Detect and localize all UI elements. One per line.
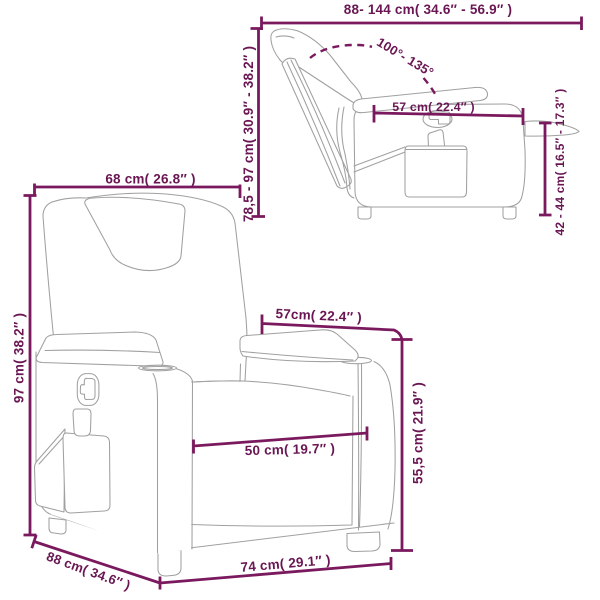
svg-text:68 cm( 26.8″ ): 68 cm( 26.8″ ) xyxy=(105,172,195,187)
svg-text:50 cm( 19.7″ ): 50 cm( 19.7″ ) xyxy=(245,441,336,458)
svg-text:97 cm( 38.2″ ): 97 cm( 38.2″ ) xyxy=(12,313,27,403)
svg-text:55,5 cm( 21.9″ ): 55,5 cm( 21.9″ ) xyxy=(411,382,426,484)
svg-text:57 cm( 22.4″ ): 57 cm( 22.4″ ) xyxy=(392,100,475,114)
svg-text:78,5 - 97 cm( 30.9″ - 38.2″ ): 78,5 - 97 cm( 30.9″ - 38.2″ ) xyxy=(241,46,256,222)
svg-text:42 - 44 cm( 16.5″ - 17.3″ ): 42 - 44 cm( 16.5″ - 17.3″ ) xyxy=(553,89,567,236)
svg-text:88- 144 cm( 34.6″ - 56.9″ ): 88- 144 cm( 34.6″ - 56.9″ ) xyxy=(344,2,512,17)
